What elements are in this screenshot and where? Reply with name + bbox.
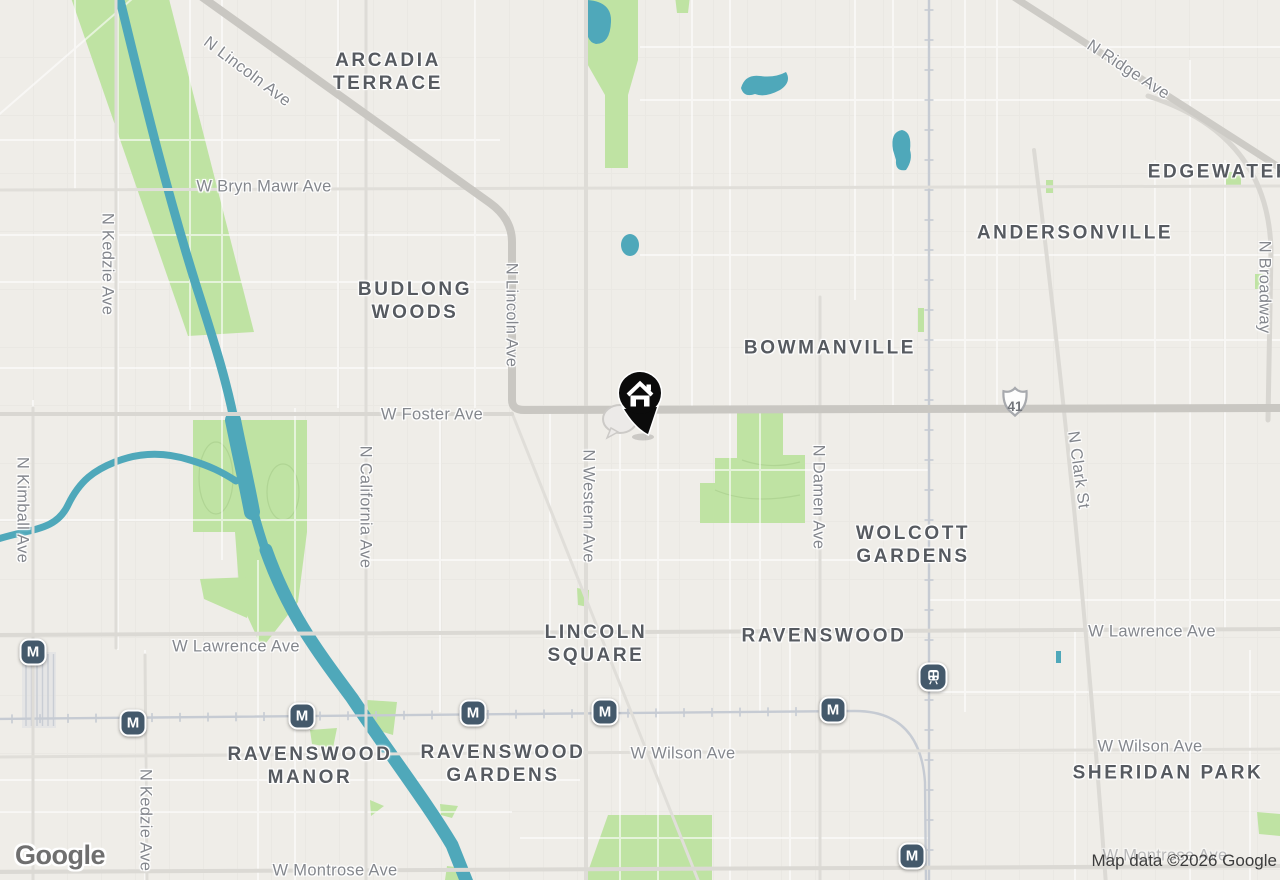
neighborhood-label-line: ARCADIA: [333, 49, 443, 72]
neighborhood-label-line: GARDENS: [421, 764, 586, 787]
route-shield-number: 41: [1007, 399, 1023, 414]
google-logo[interactable]: Google: [15, 840, 105, 871]
road-label: N Kedzie Ave: [136, 769, 155, 871]
neighborhood-label-line: WOODS: [358, 301, 472, 324]
metro-station-icon[interactable]: M: [120, 710, 147, 737]
road-label: W Foster Ave: [381, 406, 483, 425]
neighborhood-label-line: RAVENSWOOD: [421, 741, 586, 764]
road-label: W Wilson Ave: [630, 745, 735, 764]
neighborhood-label: BUDLONGWOODS: [358, 278, 472, 324]
metro-station-letter: M: [27, 645, 40, 660]
neighborhood-label: LINCOLNSQUARE: [545, 621, 648, 667]
neighborhood-label-line: ANDERSONVILLE: [977, 222, 1173, 245]
road-label: N Lincoln Ave: [502, 263, 521, 368]
metro-station-icon[interactable]: M: [460, 700, 487, 727]
neighborhood-label-line: WOLCOTT: [856, 522, 970, 545]
metro-station-letter: M: [827, 703, 840, 718]
metro-station-letter: M: [467, 706, 480, 721]
map-attribution: Map data ©2026 Google: [1092, 851, 1278, 871]
neighborhood-label-line: SHERIDAN PARK: [1073, 762, 1264, 785]
road-label: N Kimball Ave: [13, 457, 32, 563]
neighborhood-label: RAVENSWOODMANOR: [228, 743, 393, 789]
neighborhood-label-line: EDGEWATER: [1148, 161, 1280, 184]
road-label: N Kedzie Ave: [98, 213, 117, 315]
metro-station-letter: M: [906, 849, 919, 864]
neighborhood-label: ANDERSONVILLE: [977, 222, 1173, 245]
road-label: N Damen Ave: [809, 445, 828, 550]
metro-station-letter: M: [127, 716, 140, 731]
road-label: W Lawrence Ave: [1088, 623, 1216, 642]
neighborhood-label-line: RAVENSWOOD: [228, 743, 393, 766]
train-icon: [924, 668, 942, 686]
neighborhood-label-line: GARDENS: [856, 545, 970, 568]
road-label: N Broadway: [1255, 241, 1274, 334]
neighborhood-label-line: LINCOLN: [545, 621, 648, 644]
metro-station-letter: M: [599, 705, 612, 720]
map-canvas[interactable]: 41 ARCADIATERRACEBUDLONGWOODSBOWMANVILLE…: [0, 0, 1280, 880]
neighborhood-label: WOLCOTTGARDENS: [856, 522, 970, 568]
road-label: N Western Ave: [579, 449, 598, 562]
neighborhood-label: ARCADIATERRACE: [333, 49, 443, 95]
neighborhood-label-line: SQUARE: [545, 644, 648, 667]
road-label: N California Ave: [356, 446, 375, 569]
metro-station-icon[interactable]: M: [592, 699, 619, 726]
road-label: W Bryn Mawr Ave: [196, 178, 331, 197]
neighborhood-label-line: TERRACE: [333, 72, 443, 95]
neighborhood-label-line: MANOR: [228, 766, 393, 789]
neighborhood-label: BOWMANVILLE: [744, 337, 916, 360]
neighborhood-label-line: RAVENSWOOD: [742, 625, 907, 648]
neighborhood-label-line: BUDLONG: [358, 278, 472, 301]
neighborhood-label: SHERIDAN PARK: [1073, 762, 1264, 785]
metro-station-icon[interactable]: M: [899, 843, 926, 870]
road-label: W Lawrence Ave: [172, 638, 300, 657]
neighborhood-label: RAVENSWOODGARDENS: [421, 741, 586, 787]
metro-station-icon[interactable]: M: [20, 639, 47, 666]
metro-station-icon[interactable]: M: [289, 703, 316, 730]
road-label: W Wilson Ave: [1097, 738, 1202, 757]
road-label: W Montrose Ave: [273, 862, 398, 880]
neighborhood-label: EDGEWATER: [1148, 161, 1280, 184]
metro-station-letter: M: [296, 709, 309, 724]
neighborhood-label: RAVENSWOOD: [742, 625, 907, 648]
neighborhood-label-line: BOWMANVILLE: [744, 337, 916, 360]
metro-station-icon[interactable]: M: [820, 697, 847, 724]
train-station-icon[interactable]: [919, 663, 948, 692]
